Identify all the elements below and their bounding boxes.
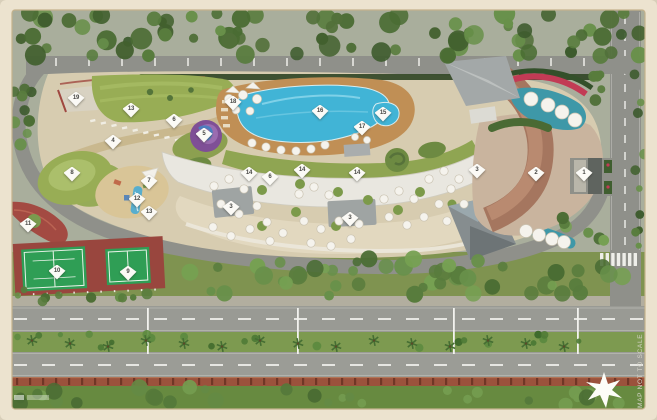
pool-complex <box>216 77 415 155</box>
kids-pool <box>373 102 399 125</box>
site-plan-rendering <box>0 0 657 420</box>
watermark <box>14 395 49 400</box>
gate-house <box>570 158 614 196</box>
map-note: MAP NOT TO SCALE <box>637 316 646 408</box>
site-plan-page: 12333456678910111213131414141516171819 M… <box>0 0 657 420</box>
